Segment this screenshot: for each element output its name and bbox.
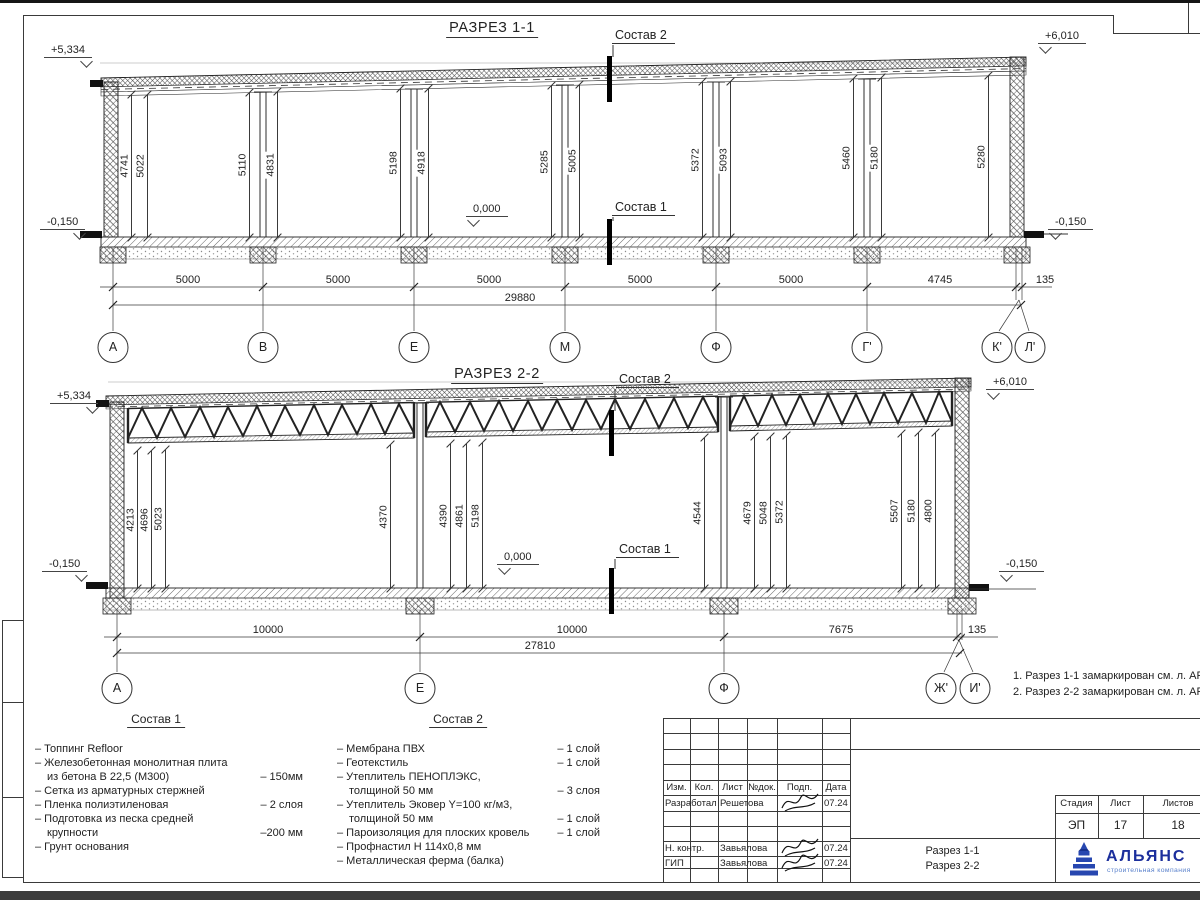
- section-1-1-title: РАЗРЕЗ 1-1: [446, 20, 538, 38]
- axis-bubble: Л': [1015, 332, 1046, 363]
- edge-box-line: [2, 877, 23, 878]
- dimension-value: 5280: [977, 143, 988, 170]
- section-1-1-drawing: [0, 0, 1200, 360]
- page-bottom-strip: [0, 891, 1200, 900]
- axis-bubble: А: [102, 673, 133, 704]
- axis-bubble: Е: [399, 332, 430, 363]
- dimension-value: 5198: [471, 502, 482, 529]
- signature-row: Разработал Решетова 07.24: [0, 797, 1200, 812]
- vertical-dimension: 4679: [754, 437, 755, 588]
- dimension-value: 5460: [842, 144, 853, 171]
- signature-icon: [779, 849, 821, 875]
- note-line: 2. Разрез 2-2 замаркирован см. л. АР-15: [1013, 684, 1200, 700]
- row-role: ГИП: [665, 858, 684, 869]
- elevation-mark: -0,150: [1048, 216, 1093, 230]
- dimension-value: 5372: [775, 498, 786, 525]
- dimension-value: 5000: [776, 274, 806, 286]
- axis-bubble: Г': [852, 332, 883, 363]
- row-name: Завьялова: [720, 843, 767, 854]
- material-layer-row: – Подготовка из песка средней крупности …: [35, 812, 303, 840]
- elevation-mark: +6,010: [986, 376, 1034, 390]
- dimension-value: 4745: [925, 274, 955, 286]
- revision-header-cell: Дата: [822, 782, 850, 793]
- material-value: – 3 слоя: [550, 784, 600, 798]
- vertical-dimension: 4831: [277, 92, 278, 237]
- document-title-line: Разрез 1-1: [850, 845, 1055, 857]
- composition-cut-label: Состав 1: [612, 200, 675, 216]
- axis-bubble: Ж': [926, 673, 957, 704]
- material-layer-row: – Мембрана ПВХ – 1 слой: [337, 742, 600, 756]
- vertical-dimension: 5372: [786, 436, 787, 588]
- material-name: – Топпинг Refloor: [35, 742, 123, 756]
- dimension-value: 4800: [924, 497, 935, 524]
- frame-top-step-h: [1113, 33, 1200, 34]
- page-top-strip: [0, 0, 1200, 3]
- vertical-dimension: 5005: [579, 85, 580, 237]
- material-value: – 1 слой: [549, 812, 600, 826]
- dimension-value: 10000: [554, 624, 591, 636]
- revision-header-cell: №док.: [747, 782, 777, 793]
- logo-pyramid-icon: [1068, 842, 1100, 878]
- dimension-value: 7675: [826, 624, 856, 636]
- revision-header-cell: Кол.: [690, 782, 718, 793]
- material-layer-row: – Пароизоляция для плоских кровель – 1 с…: [337, 826, 600, 840]
- section-2-2-drawing: [0, 360, 1200, 705]
- dimension-value: 5048: [759, 499, 770, 526]
- dimension-value: 5022: [136, 152, 147, 179]
- axis-bubble: Ф: [709, 673, 740, 704]
- material-layer-row: – Утеплитель ПЕНОПЛЭКС, толщиной 50 мм –…: [337, 770, 600, 798]
- sostav-1-heading: Состав 1: [127, 712, 185, 728]
- row-date: 07.24: [824, 798, 848, 809]
- dimension-value: 135: [965, 624, 989, 636]
- material-name-line2: крупности: [35, 826, 193, 840]
- elevation-mark: +5,334: [44, 44, 92, 58]
- row-name: Завьялова: [720, 858, 767, 869]
- vertical-dimension: 5023: [165, 450, 166, 588]
- elevation-mark: -0,150: [40, 216, 85, 230]
- edge-box-line: [2, 702, 23, 703]
- vertical-dimension: 4544: [704, 438, 705, 588]
- frame-bottom: [23, 882, 1200, 883]
- frame-left: [23, 15, 24, 882]
- row-date: 07.24: [824, 858, 848, 869]
- elevation-mark: +5,334: [50, 390, 98, 404]
- dimension-value: 5093: [719, 146, 730, 173]
- dimension-value: 5372: [691, 146, 702, 173]
- material-name: – Утеплитель ПЕНОПЛЭКС,: [337, 770, 481, 784]
- elevation-mark: 0,000: [466, 203, 508, 217]
- frame-top: [23, 15, 1113, 16]
- dimension-value: 5023: [154, 505, 165, 532]
- section-1-total-dimension: 29880: [502, 292, 539, 304]
- dimension-value: 5198: [389, 149, 400, 176]
- material-layer-row: – Сетка из арматурных стержней: [35, 784, 303, 798]
- dimension-value: 5285: [540, 148, 551, 175]
- dimension-value: 5180: [870, 144, 881, 171]
- dimension-value: 5000: [173, 274, 203, 286]
- material-layer-row: – Геотекстиль – 1 слой: [337, 756, 600, 770]
- material-value: – 150мм: [252, 770, 303, 784]
- axis-bubble: А: [98, 332, 129, 363]
- axis-bubble: М: [550, 332, 581, 363]
- vertical-dimension: 5198: [482, 443, 483, 588]
- frame-corner-cut: [1188, 3, 1189, 33]
- vertical-dimension: 5198: [400, 89, 401, 237]
- elevation-mark: 0,000: [497, 551, 539, 565]
- dimension-value: 5110: [238, 152, 249, 179]
- material-name: – Геотекстиль: [337, 756, 408, 770]
- material-name: – Пароизоляция для плоских кровель: [337, 826, 529, 840]
- drawing-sheet: РАЗРЕЗ 1-1 РАЗРЕЗ 2-2 +5,334 +6,010 -0,1…: [0, 0, 1200, 900]
- signature-icon: [779, 789, 821, 815]
- dimension-value: 4370: [379, 503, 390, 530]
- dimension-value: 5000: [474, 274, 504, 286]
- dimension-value: 5507: [890, 497, 901, 524]
- reference-notes: 1. Разрез 1-1 замаркирован см. л. АР-15 …: [1013, 668, 1200, 700]
- sostav-2-heading: Состав 2: [429, 712, 487, 728]
- dimension-value: 10000: [250, 624, 287, 636]
- vertical-dimension: 4800: [935, 433, 936, 588]
- stage-value-cell: 18: [1143, 818, 1200, 832]
- dimension-value: 5005: [568, 147, 579, 174]
- stage-header-cell: Лист: [1098, 798, 1143, 809]
- vertical-dimension: 5285: [551, 86, 552, 237]
- axis-bubble: К': [982, 332, 1013, 363]
- section-2-total-dimension: 27810: [522, 640, 559, 652]
- stage-value-cell: 17: [1098, 818, 1143, 832]
- row-role: Разработал: [665, 798, 717, 809]
- elevation-mark: +6,010: [1038, 30, 1086, 44]
- material-name: – Сетка из арматурных стержней: [35, 784, 205, 798]
- row-role: Н. контр.: [665, 843, 704, 854]
- material-value: – 1 слой: [549, 756, 600, 770]
- axis-bubble: Е: [405, 673, 436, 704]
- dimension-value: 135: [1033, 274, 1057, 286]
- dimension-value: 4831: [266, 151, 277, 178]
- revision-header-cell: Лист: [718, 782, 747, 793]
- vertical-dimension: 5507: [901, 434, 902, 588]
- dimension-value: 5000: [323, 274, 353, 286]
- vertical-dimension: 5180: [918, 433, 919, 588]
- vertical-dimension: 5280: [988, 76, 989, 237]
- material-name: – Мембрана ПВХ: [337, 742, 425, 756]
- section-2-2-title: РАЗРЕЗ 2-2: [451, 366, 543, 384]
- elevation-mark: -0,150: [42, 558, 87, 572]
- material-layer-row: – Топпинг Refloor: [35, 742, 303, 756]
- material-layer-row: – Железобетонная монолитная плита из бет…: [35, 756, 303, 784]
- dimension-value: 4861: [455, 502, 466, 529]
- frame-top-step-v: [1113, 15, 1114, 33]
- dimension-value: 4544: [693, 499, 704, 526]
- logo-company-name: АЛЬЯНС: [1106, 848, 1186, 866]
- vertical-dimension: 5093: [730, 82, 731, 237]
- edge-box-line: [2, 620, 23, 621]
- logo-company-subtitle: строительная компания: [1107, 867, 1191, 874]
- vertical-dimension: 4861: [466, 444, 467, 588]
- vertical-dimension: 4918: [428, 89, 429, 237]
- dimension-value: 4390: [439, 502, 450, 529]
- stage-value-cell: ЭП: [1055, 818, 1098, 832]
- dimension-value: 4696: [140, 506, 151, 533]
- material-name-line2: толщиной 50 мм: [337, 784, 481, 798]
- note-line: 1. Разрез 1-1 замаркирован см. л. АР-15: [1013, 668, 1200, 684]
- vertical-dimension: 4370: [390, 445, 391, 588]
- stage-header-cell: Стадия: [1055, 798, 1098, 809]
- vertical-dimension: 5022: [147, 95, 148, 237]
- axis-bubble: И': [960, 673, 991, 704]
- dimension-value: 4679: [743, 499, 754, 526]
- dimension-value: 4741: [120, 152, 131, 179]
- vertical-dimension: 5372: [702, 82, 703, 237]
- composition-cut-label: Состав 2: [616, 372, 679, 388]
- dimension-value: 5180: [907, 497, 918, 524]
- row-date: 07.24: [824, 843, 848, 854]
- axis-bubble: В: [248, 332, 279, 363]
- document-title-line: Разрез 2-2: [850, 860, 1055, 872]
- axis-bubble: Ф: [701, 332, 732, 363]
- composition-cut-label: Состав 2: [612, 28, 675, 44]
- edge-boxes-left: [2, 620, 3, 877]
- composition-cut-label: Состав 1: [616, 542, 679, 558]
- vertical-dimension: 4390: [450, 444, 451, 588]
- revision-header-cell: Изм.: [663, 782, 690, 793]
- material-name-line2: из бетона В 22,5 (М300): [35, 770, 228, 784]
- material-name-line2: толщиной 50 мм: [337, 812, 512, 826]
- stage-header-cell: Листов: [1143, 798, 1200, 809]
- vertical-dimension: 5460: [853, 79, 854, 237]
- dimension-value: 4918: [417, 149, 428, 176]
- row-name: Решетова: [720, 798, 764, 809]
- material-name: – Железобетонная монолитная плита: [35, 756, 228, 770]
- material-value: – 1 слой: [549, 826, 600, 840]
- vertical-dimension: 5180: [881, 78, 882, 237]
- material-value: – 1 слой: [549, 742, 600, 756]
- material-name: – Подготовка из песка средней: [35, 812, 193, 826]
- elevation-mark: -0,150: [999, 558, 1044, 572]
- dimension-value: 5000: [625, 274, 655, 286]
- vertical-dimension: 5110: [249, 93, 250, 237]
- vertical-dimension: 5048: [770, 437, 771, 588]
- dimension-value: 4213: [126, 506, 137, 533]
- material-value: –200 мм: [252, 826, 303, 840]
- vertical-dimension: 4741: [131, 95, 132, 237]
